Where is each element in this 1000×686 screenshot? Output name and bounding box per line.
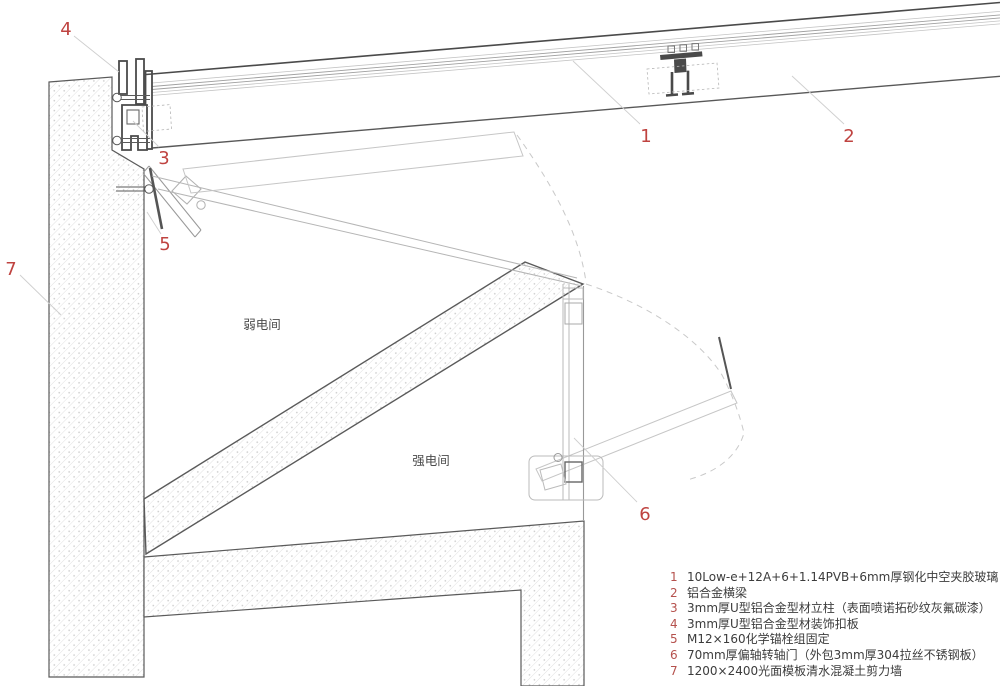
lower-bracket bbox=[143, 166, 205, 237]
legend-item-number: 5 bbox=[670, 632, 687, 648]
legend-item-number: 7 bbox=[670, 664, 687, 680]
callout-2: 2 bbox=[843, 126, 854, 147]
glass-roof-lines bbox=[146, 3, 1000, 149]
callout-7: 7 bbox=[5, 259, 16, 280]
legend-item: 7 1200×2400光面模板清水混凝土剪力墙 bbox=[670, 664, 998, 680]
mullion-bracket bbox=[647, 44, 719, 96]
legend-item-text: M12×160化学锚栓组固定 bbox=[687, 632, 830, 648]
callout-5: 5 bbox=[159, 234, 170, 255]
callout-6: 6 bbox=[639, 504, 650, 525]
legend-item: 3 3mm厚U型铝合金型材立柱（表面喷诺拓砂纹灰氟碳漆） bbox=[670, 601, 998, 617]
detail-drawing-page: 弱电间 强电间 1 2 3 4 5 6 7 1 10Low-e+12A+6+1.… bbox=[0, 0, 1000, 686]
legend-item-text: 1200×2400光面模板清水混凝土剪力墙 bbox=[687, 664, 902, 680]
legend: 1 10Low-e+12A+6+1.14PVB+6mm厚钢化中空夹胶玻璃 2 铝… bbox=[670, 570, 998, 679]
sloped-concrete-band bbox=[144, 262, 583, 554]
legend-item: 5 M12×160化学锚栓组固定 bbox=[670, 632, 998, 648]
legend-item-number: 3 bbox=[670, 601, 687, 617]
legend-item: 4 3mm厚U型铝合金型材装饰扣板 bbox=[670, 617, 998, 633]
room-label-strong-power: 强电间 bbox=[412, 453, 450, 468]
legend-item: 6 70mm厚偏轴转轴门（外包3mm厚304拉丝不锈钢板） bbox=[670, 648, 998, 664]
legend-item-text: 3mm厚U型铝合金型材装饰扣板 bbox=[687, 617, 859, 633]
floor-slab-band bbox=[144, 521, 584, 686]
room-label-weak-power: 弱电间 bbox=[243, 317, 281, 332]
legend-item: 2 铝合金横梁 bbox=[670, 586, 998, 602]
legend-item-number: 6 bbox=[670, 648, 687, 664]
door-swing-end-position bbox=[536, 337, 737, 481]
door-swing-arc bbox=[517, 135, 744, 480]
legend-item-text: 10Low-e+12A+6+1.14PVB+6mm厚钢化中空夹胶玻璃 bbox=[687, 570, 998, 586]
legend-item-number: 4 bbox=[670, 617, 687, 633]
callout-4: 4 bbox=[60, 19, 71, 40]
concrete-wall bbox=[49, 77, 144, 677]
legend-item-text: 70mm厚偏轴转轴门（外包3mm厚304拉丝不锈钢板） bbox=[687, 648, 984, 664]
legend-item-number: 2 bbox=[670, 586, 687, 602]
callout-3: 3 bbox=[158, 148, 169, 169]
callout-1: 1 bbox=[640, 126, 651, 147]
legend-item-text: 3mm厚U型铝合金型材立柱（表面喷诺拓砂纹灰氟碳漆） bbox=[687, 601, 991, 617]
legend-item-text: 铝合金横梁 bbox=[687, 586, 747, 602]
legend-item: 1 10Low-e+12A+6+1.14PVB+6mm厚钢化中空夹胶玻璃 bbox=[670, 570, 998, 586]
legend-item-number: 1 bbox=[670, 570, 687, 586]
door-section bbox=[529, 284, 603, 520]
